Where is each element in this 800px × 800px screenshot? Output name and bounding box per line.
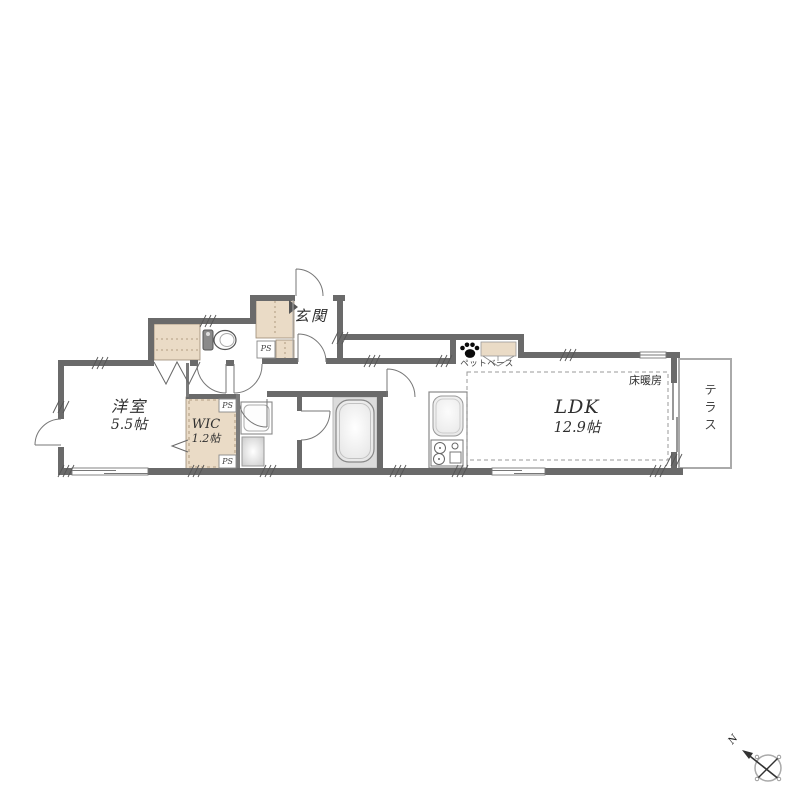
entry-door — [296, 269, 323, 296]
entrance-hall-door — [298, 334, 326, 362]
western-room-size-label: 5.5帖 — [79, 418, 179, 433]
paw-icon — [460, 343, 479, 358]
bedroom-west-door — [35, 419, 61, 445]
washer-pan — [242, 437, 264, 466]
compass-icon — [742, 750, 781, 781]
western-room-label: 洋室 — [79, 399, 179, 416]
window-terrace-door — [673, 383, 677, 452]
pipe-space-label: PS — [219, 458, 236, 466]
ldk-size-label: 12.9帖 — [527, 421, 627, 436]
wic-label: WIC — [176, 418, 236, 432]
pet-bed — [481, 342, 516, 356]
floor-heating-label: 床暖房 — [592, 375, 662, 387]
bathroom — [302, 397, 377, 468]
pet-space-label: ペットベース — [450, 360, 524, 369]
entrance-label: 玄関 — [276, 309, 346, 325]
ldk-door — [387, 369, 415, 397]
bathtub — [336, 400, 374, 462]
toilet-door — [197, 364, 226, 393]
toilet — [203, 330, 236, 350]
wic-size-label: 1.2帖 — [176, 433, 236, 445]
ldk-label: LDK — [527, 398, 627, 418]
floor-plan-page: 玄関 洋室 5.5帖 WIC 1.2帖 LDK 12.9帖 床暖房 テラス ペッ… — [0, 0, 800, 800]
pipe-space-label: PS — [257, 345, 275, 353]
terrace-label: テラス — [694, 383, 716, 447]
kitchen — [429, 392, 467, 468]
hall-closet — [154, 324, 200, 360]
pipe-space-label: PS — [219, 402, 236, 410]
bedroom-door — [234, 364, 262, 393]
